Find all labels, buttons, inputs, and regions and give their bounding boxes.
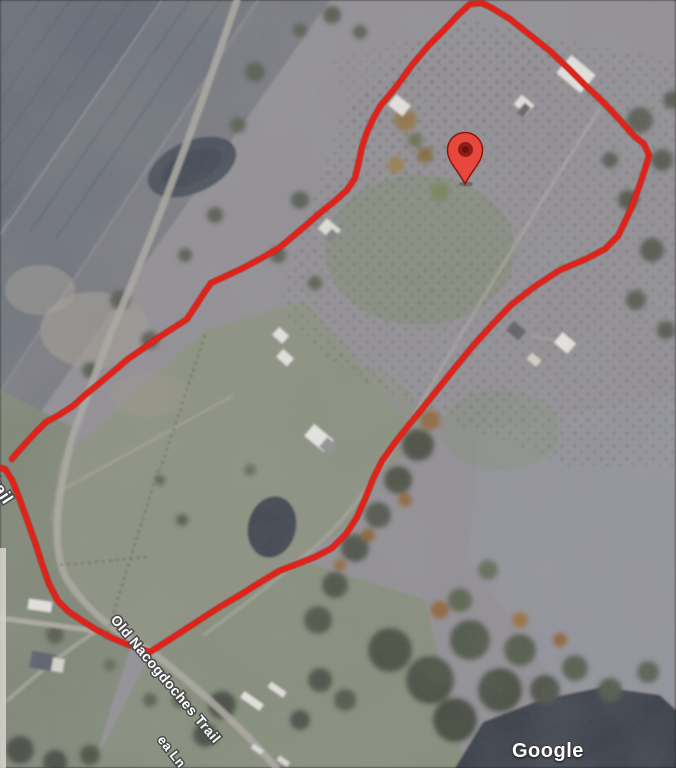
map-container[interactable]: Trail Old Nacogdoches Trail ea Ln Google	[0, 0, 676, 768]
pin-inner-core	[462, 146, 469, 153]
image-edge-strip	[0, 548, 6, 768]
google-watermark[interactable]: Google	[512, 740, 584, 762]
